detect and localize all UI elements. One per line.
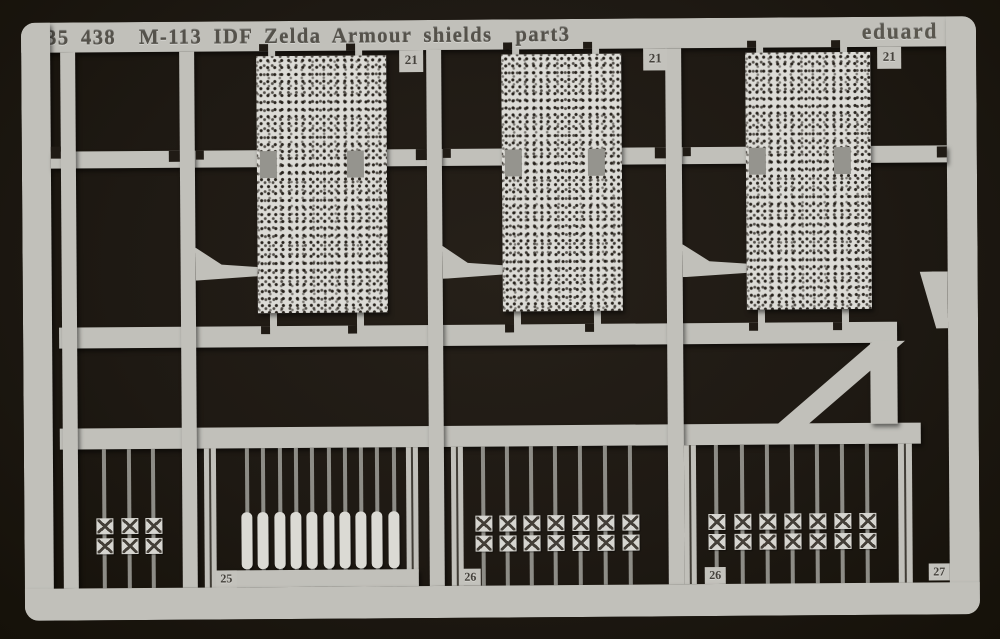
fret-strut — [179, 52, 198, 588]
buckle-clip-part — [597, 535, 614, 551]
part-number-label: 26 — [705, 567, 726, 584]
etch-cut-mark — [51, 147, 61, 159]
buckle-clip-part — [784, 533, 801, 549]
etch-cut-mark — [585, 324, 594, 332]
buckle-clip-part — [145, 518, 162, 534]
etch-cut-mark — [749, 323, 758, 331]
group-frame-bar — [898, 444, 913, 583]
group-frame-bar — [204, 448, 217, 587]
comb-strip-part — [339, 512, 350, 569]
etch-cut-mark — [937, 146, 947, 157]
etch-cut-mark — [261, 326, 270, 334]
buckle-clip-part — [572, 515, 589, 531]
hanger-wire — [359, 447, 363, 517]
etch-cut-mark — [259, 44, 268, 51]
etch-cut-mark — [169, 151, 180, 162]
hanger-wire — [310, 448, 314, 518]
comb-strip-part — [355, 511, 366, 568]
group-frame-bar — [684, 445, 697, 584]
part-number-label: 21 — [643, 48, 667, 70]
panel-bottom-tab — [842, 309, 849, 323]
group-frame-bar — [451, 447, 464, 586]
buckle-clip-part — [859, 533, 876, 549]
tapered-arm — [195, 247, 257, 280]
buckle-clip-part — [834, 533, 851, 549]
comb-strip-part — [323, 512, 334, 569]
buckle-clip-part — [708, 534, 725, 550]
etch-cut-mark — [831, 40, 840, 47]
etch-cut-mark — [346, 44, 355, 51]
attachment-pad — [505, 149, 522, 176]
buckle-clip-part — [122, 538, 139, 554]
etch-cut-mark — [683, 147, 691, 156]
comb-bottom-bar — [219, 569, 419, 587]
buckle-clip-part — [499, 515, 516, 531]
hanger-wire — [327, 448, 331, 518]
buckle-clip-part — [734, 534, 751, 550]
etch-cut-mark — [348, 326, 357, 334]
etch-cut-mark — [747, 41, 756, 48]
buckle-clip-part — [809, 513, 826, 529]
buckle-clip-part — [523, 535, 540, 551]
attachment-pad — [260, 151, 277, 178]
part-number-label: 26 — [460, 569, 481, 586]
buckle-clip-part — [859, 513, 876, 529]
buckle-clip-part — [547, 515, 564, 531]
comb-strip-part — [241, 512, 252, 569]
etch-cut-mark — [505, 324, 514, 332]
buckle-clip-part — [784, 513, 801, 529]
armour-shield-panel — [501, 54, 623, 312]
etch-cut-mark — [443, 149, 451, 158]
buckle-clip-part — [759, 514, 776, 530]
etch-cut-mark — [833, 322, 842, 330]
buckle-clip-part — [475, 536, 492, 552]
buckle-clip-part — [475, 516, 492, 532]
buckle-clip-part — [97, 538, 114, 554]
taper-wedge — [920, 271, 948, 328]
panel-bottom-tab — [270, 313, 277, 327]
hanger-wire — [375, 447, 379, 517]
panel-bottom-tab — [758, 310, 765, 324]
tapered-arm — [682, 244, 746, 277]
buckle-clip-part — [708, 514, 725, 530]
buckle-clip-part — [146, 538, 163, 554]
buckle-clip-part — [734, 514, 751, 530]
panel-bottom-tab — [594, 311, 601, 325]
etch-cut-mark — [655, 147, 666, 158]
buckle-clip-part — [622, 535, 639, 551]
buckle-clip-part — [96, 518, 113, 534]
fret-border-bottom: © EDUARD 2002 Made in Czech Republic — [25, 582, 980, 621]
panel-bottom-tab — [357, 312, 364, 326]
hanger-wire — [343, 448, 347, 518]
attachment-pad — [347, 150, 364, 177]
comb-strip-part — [371, 511, 382, 568]
photo-etch-fret-photo: 35 438 M-113 IDF Zelda Armour shields pa… — [0, 0, 1000, 639]
tapered-arm — [442, 245, 502, 278]
fret-parts: 21212125262627 — [21, 16, 980, 621]
part-number-label: 27 — [929, 563, 950, 580]
buckle-clip-part — [121, 518, 138, 534]
comb-strip-part — [274, 512, 285, 569]
group-frame-bar — [406, 447, 419, 586]
armour-shield-panel — [256, 55, 388, 313]
comb-strip-part — [388, 511, 399, 568]
hanger-wire — [392, 447, 396, 517]
buckle-clip-part — [572, 535, 589, 551]
part-number-label: 21 — [877, 47, 901, 69]
buckle-clip-part — [622, 515, 639, 531]
part-number-label: 25 — [216, 570, 237, 587]
fret: 35 438 M-113 IDF Zelda Armour shields pa… — [21, 16, 980, 621]
part-number-label: 21 — [399, 50, 423, 72]
etch-cut-mark — [503, 42, 512, 49]
etch-cut-mark — [583, 42, 592, 49]
buckle-clip-part — [547, 535, 564, 551]
armour-shield-panel — [745, 52, 872, 310]
hanger-wire — [261, 448, 265, 518]
attachment-pad — [749, 148, 766, 175]
fret-strut — [60, 52, 79, 588]
fret-strut — [426, 50, 445, 586]
comb-strip-part — [306, 512, 317, 569]
etch-cut-mark — [416, 149, 427, 160]
hanger-wire — [278, 448, 282, 518]
comb-strip-part — [257, 512, 268, 569]
attachment-pad — [588, 149, 605, 176]
buckle-clip-part — [523, 515, 540, 531]
fret-strut — [665, 48, 685, 584]
buckle-clip-part — [499, 535, 516, 551]
hanger-wire — [294, 448, 298, 518]
buckle-clip-part — [597, 515, 614, 531]
attachment-pad — [834, 147, 851, 174]
panel-bottom-tab — [514, 311, 521, 325]
buckle-clip-part — [809, 533, 826, 549]
etch-cut-mark — [196, 151, 204, 160]
hanger-wire — [245, 448, 249, 518]
buckle-clip-part — [834, 513, 851, 529]
comb-strip-part — [290, 512, 301, 569]
buckle-clip-part — [759, 534, 776, 550]
